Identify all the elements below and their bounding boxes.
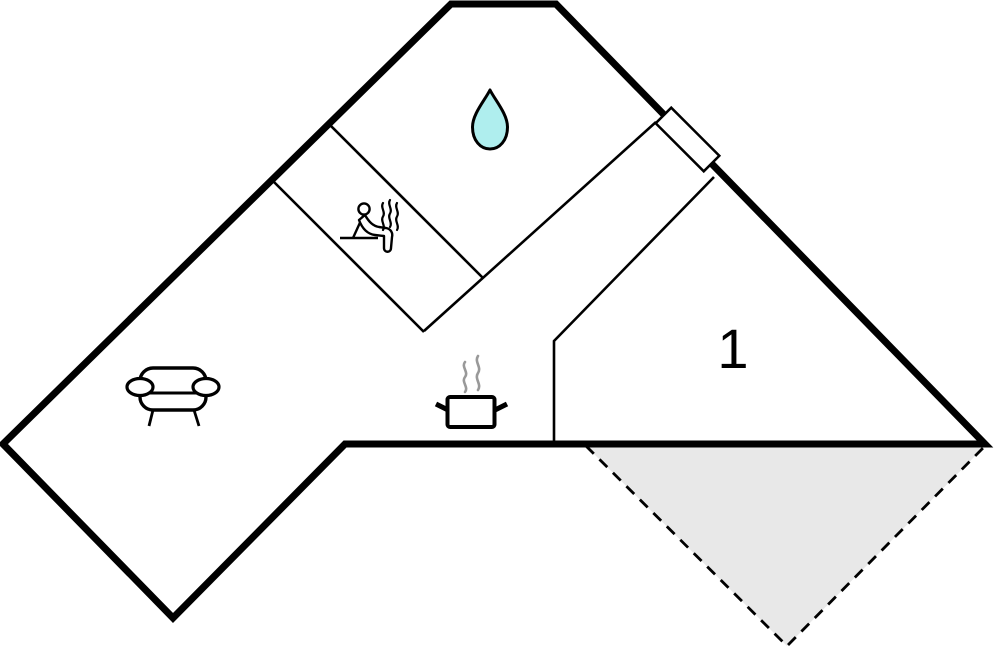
terrace-area bbox=[586, 446, 985, 646]
floor-plan: 1 bbox=[0, 0, 998, 652]
floor-plan-svg bbox=[0, 0, 998, 652]
room-label: 1 bbox=[703, 318, 763, 380]
